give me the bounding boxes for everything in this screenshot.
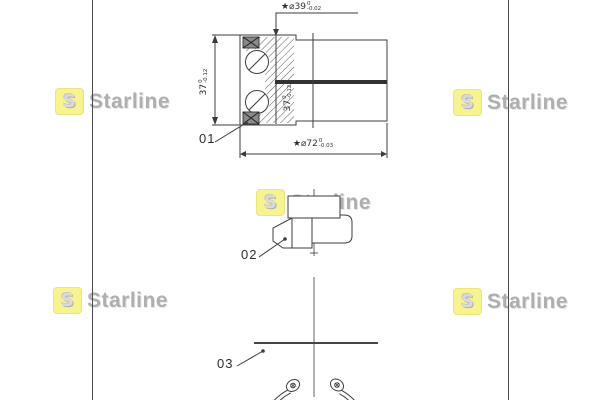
bearing-seal-top: [243, 37, 259, 48]
part-label-03: 03: [217, 356, 233, 371]
dimension-width-text: 37 0 -0.12: [199, 64, 209, 100]
technical-drawing: [0, 0, 600, 400]
bearing-drawing: [212, 13, 387, 158]
part-label-01: 01: [199, 131, 215, 146]
dimension-bore-lines: [273, 13, 358, 36]
circlip-drawing: [237, 277, 378, 400]
leader-line-03: [237, 349, 265, 366]
part-label-02: 02: [241, 247, 257, 262]
dimension-bore-text: ★⌀39 0 -0.02: [281, 2, 321, 12]
dimension-inner-width-text: 37 0 -0.12: [283, 80, 293, 116]
nut-crown: [288, 196, 340, 218]
catalog-image: S Starline S Starline S Starline S Starl…: [0, 0, 600, 400]
nut-flange: [312, 215, 352, 243]
dimension-width-lines: [212, 35, 240, 125]
nut-drawing: [259, 189, 352, 257]
dimension-outer-text: ★⌀72 0 -0.03: [276, 139, 350, 149]
